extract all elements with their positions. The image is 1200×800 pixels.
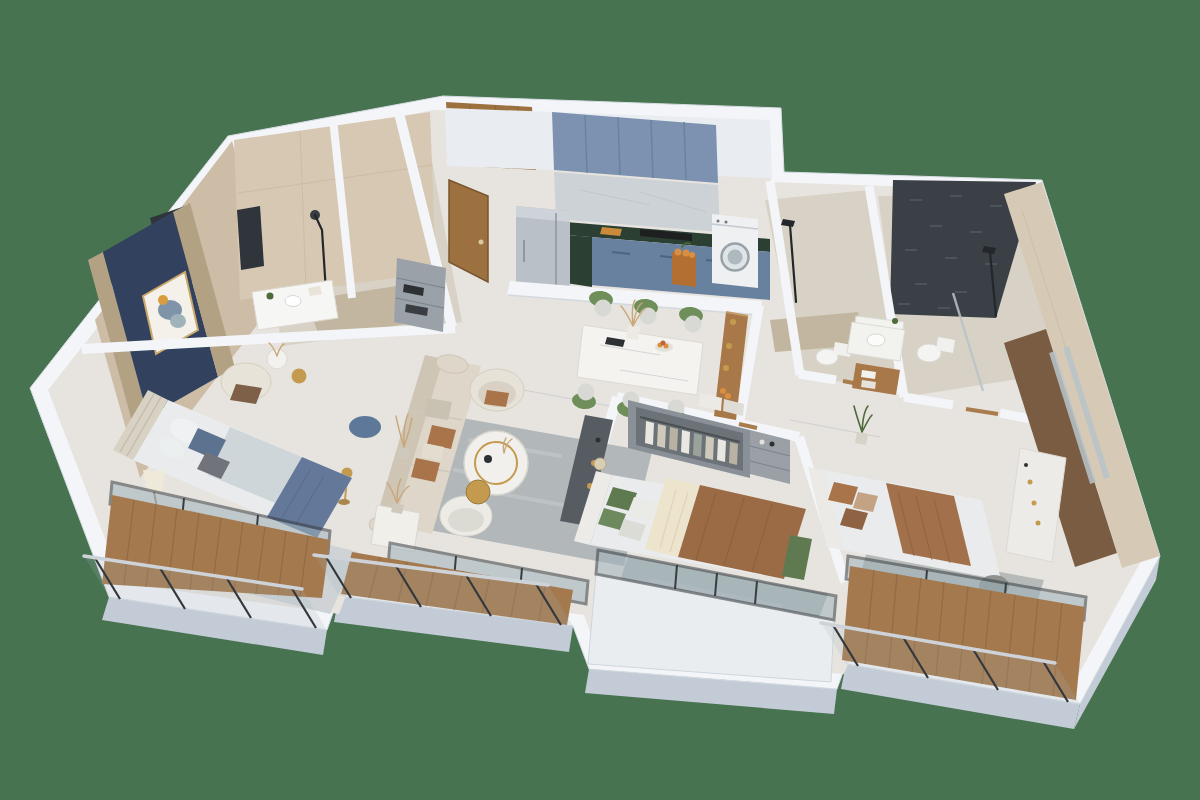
plant-bath2 [892,318,898,324]
render-canvas [0,0,1200,800]
gold-tray-table [292,369,307,384]
entry-shoe-shelf [394,258,446,332]
nesting-table [466,480,490,504]
washing-machine [712,214,758,288]
vanity-plant [267,293,274,300]
vase [391,503,404,514]
pampas-vase [626,325,640,340]
table-decor [484,455,492,463]
side-table-round [267,349,287,369]
bedside-lamp-2 [594,458,606,470]
ensuite-basin [867,334,885,346]
door-handle [479,240,484,245]
wall-bathroom2-south-a [799,374,836,380]
floor-plan-svg [0,0,1200,800]
armchair-pillow [484,390,509,407]
bath-mirror [237,206,264,270]
refrigerator [516,206,570,291]
vanity-basin [285,296,301,307]
blue-pouf [349,416,381,438]
armchair [470,369,524,411]
